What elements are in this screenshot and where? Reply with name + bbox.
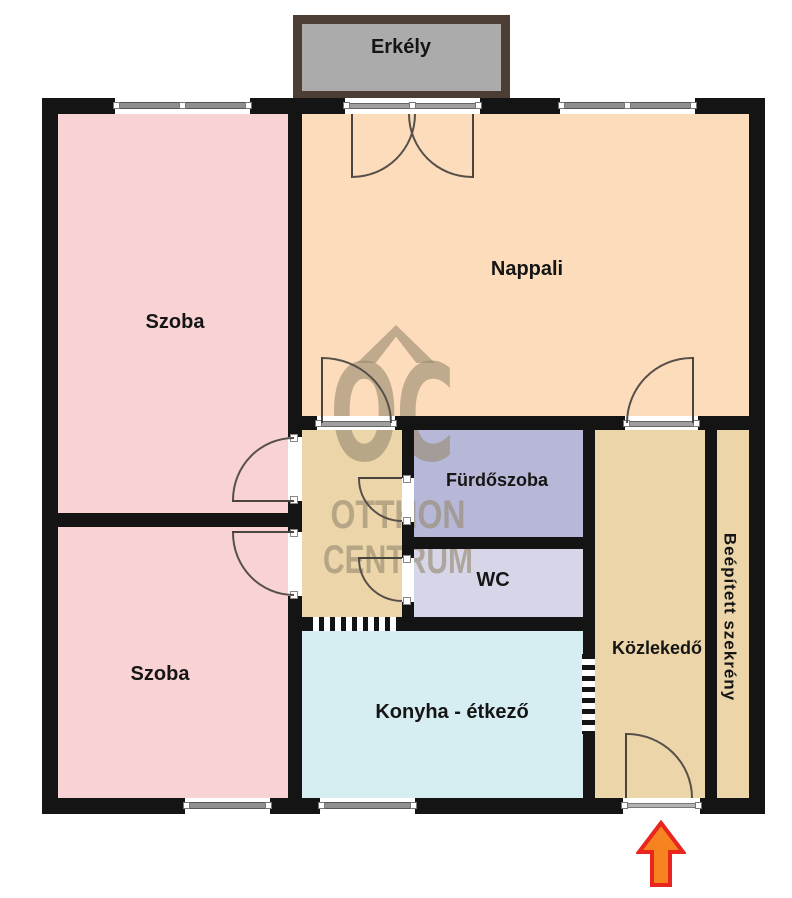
window-jamb xyxy=(179,102,186,109)
door-jamb xyxy=(693,420,700,427)
door-jamb xyxy=(343,102,350,109)
window-glass xyxy=(185,802,270,809)
window-jamb xyxy=(624,102,631,109)
label-kozlekedo: Közlekedő xyxy=(612,639,702,657)
threshold-bar xyxy=(623,803,700,808)
window-konyha xyxy=(320,798,415,814)
wall-bath-wc xyxy=(402,537,593,549)
window-jamb xyxy=(265,802,272,809)
window-jamb xyxy=(318,802,325,809)
door-jamb xyxy=(475,102,482,109)
wall-szekreny xyxy=(705,424,717,798)
window-szoba-bottom xyxy=(185,798,270,814)
window-jamb xyxy=(690,102,697,109)
floorplan-canvas: OC OTTHON CENTRUM xyxy=(0,0,792,898)
wall-outer-left xyxy=(42,98,58,814)
door-jamb xyxy=(621,802,628,809)
door-jamb xyxy=(695,802,702,809)
entrance-door-threshold xyxy=(623,798,700,814)
door-jamb xyxy=(409,102,416,109)
label-erkely: Erkély xyxy=(371,37,431,57)
hall-kitchen-passage xyxy=(308,617,400,631)
window-jamb xyxy=(113,102,120,109)
label-furdoszoba: Fürdőszoba xyxy=(446,471,548,489)
balcony-door-threshold xyxy=(345,98,480,114)
balcony-door-leaf-right xyxy=(472,114,474,178)
entrance-arrow-icon xyxy=(636,820,686,888)
label-nappali: Nappali xyxy=(491,259,563,279)
door-jamb xyxy=(403,475,411,483)
label-konyha: Konyha - étkező xyxy=(375,702,528,722)
label-szekreny: Beépített szekrény xyxy=(722,533,739,701)
window-nappali xyxy=(560,98,695,114)
window-jamb xyxy=(410,802,417,809)
wall-kitchen-kozlekedo xyxy=(583,416,595,798)
door-jamb xyxy=(403,597,411,605)
door-jamb xyxy=(403,555,411,563)
door-jamb xyxy=(403,517,411,525)
label-szoba-bottom: Szoba xyxy=(131,664,190,684)
nappali-kozlekedo-door-leaf xyxy=(692,357,694,423)
window-szoba-top xyxy=(115,98,250,114)
wc-door-gap xyxy=(402,558,414,602)
label-szoba-top: Szoba xyxy=(146,312,205,332)
label-wc: WC xyxy=(476,570,509,590)
window-glass xyxy=(320,802,415,809)
window-jamb xyxy=(183,802,190,809)
wall-outer-right xyxy=(749,98,765,814)
window-jamb xyxy=(558,102,565,109)
kitchen-kozlekedo-passage xyxy=(582,654,595,734)
wall-between-szobak xyxy=(42,513,302,527)
szoba-top-door-leaf xyxy=(232,500,294,502)
furdoszoba-door-gap xyxy=(402,478,414,522)
window-jamb xyxy=(245,102,252,109)
